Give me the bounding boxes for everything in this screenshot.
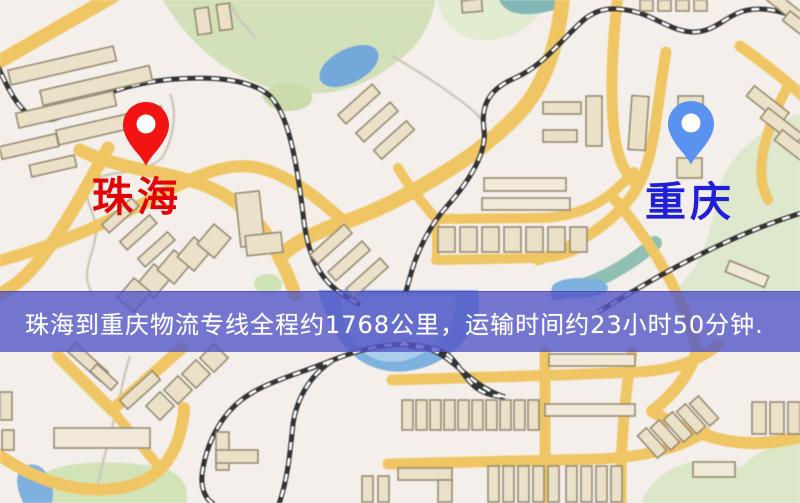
origin-label: 珠海 <box>92 177 182 218</box>
destination-pin-icon <box>666 100 716 166</box>
route-banner-text: 珠海到重庆物流专线全程约1768公里，运输时间约23小时50分钟. <box>0 305 764 340</box>
map: 珠海 重庆 珠海到重庆物流专线全程约1768公里，运输时间约23小时50分钟. <box>0 0 800 503</box>
destination-label: 重庆 <box>645 182 735 223</box>
route-banner: 珠海到重庆物流专线全程约1768公里，运输时间约23小时50分钟. <box>0 291 800 352</box>
origin-pin-icon <box>121 101 171 167</box>
origin-pin-shape <box>123 102 169 166</box>
map-background <box>0 0 800 503</box>
destination-pin-shape <box>668 101 714 165</box>
